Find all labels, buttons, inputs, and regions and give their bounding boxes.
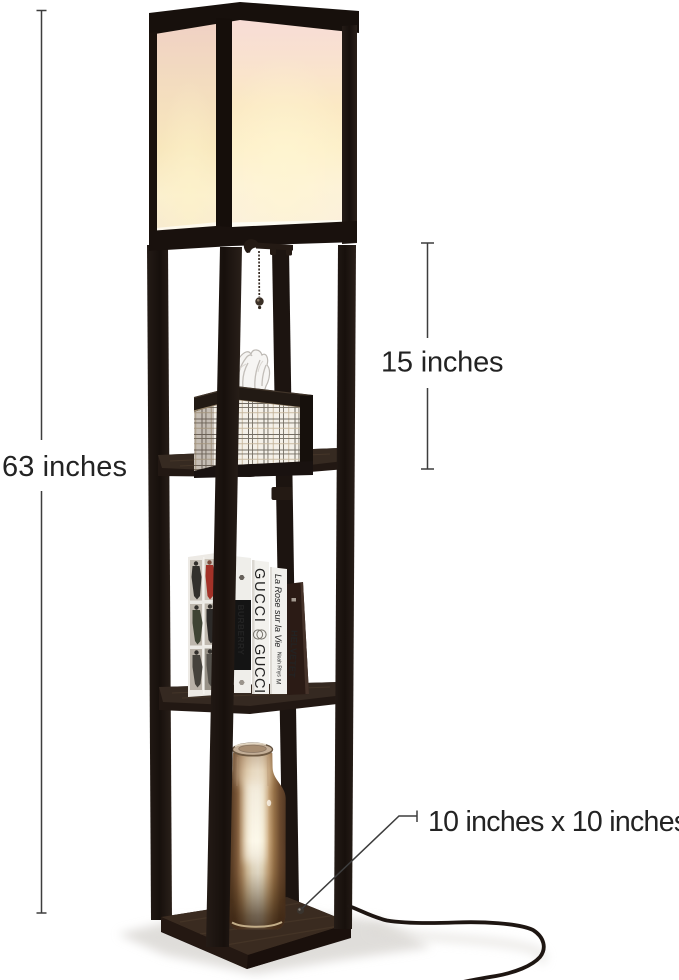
svg-text:15 inches: 15 inches <box>381 347 503 379</box>
svg-text:BURBERRY: BURBERRY <box>236 605 246 656</box>
svg-text:M: M <box>275 679 282 684</box>
svg-text:10 inches x 10 inches: 10 inches x 10 inches <box>428 806 679 838</box>
svg-text:Noah Rhys: Noah Rhys <box>276 652 282 677</box>
svg-text:63 inches: 63 inches <box>2 451 127 483</box>
svg-text:GUCCI: GUCCI <box>251 644 267 694</box>
svg-text:La Rose sur la Vie: La Rose sur la Vie <box>273 574 283 647</box>
svg-text:GUCCI: GUCCI <box>251 568 267 624</box>
